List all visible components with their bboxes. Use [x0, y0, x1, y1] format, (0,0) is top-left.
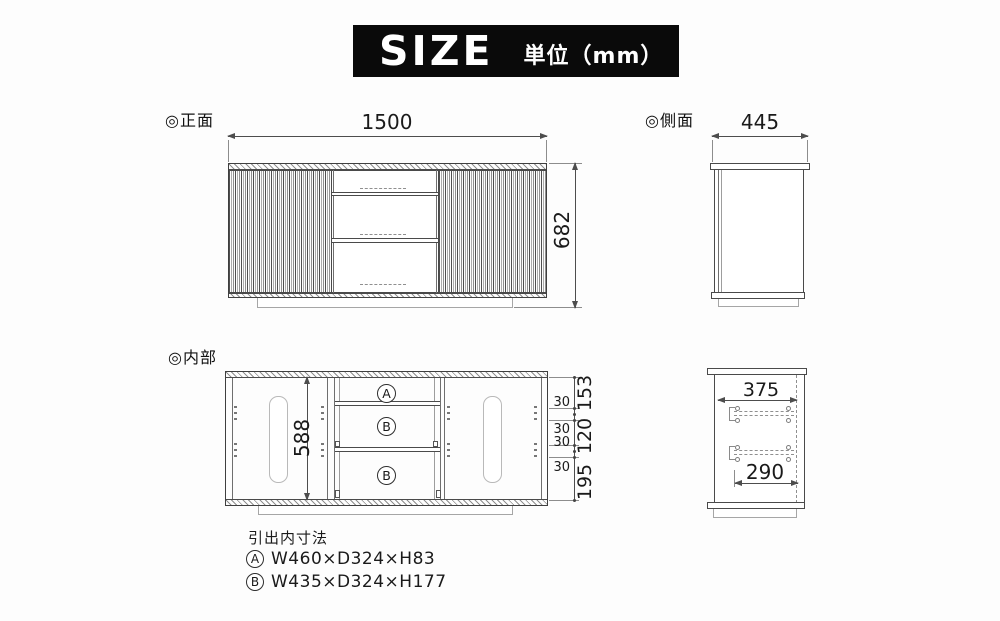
side-bottom-panel	[711, 292, 805, 299]
legend-dims-a: W460×D324×H83	[271, 549, 435, 569]
front-width-dim: 1500	[357, 111, 417, 133]
gap-dim-30: 30	[546, 396, 570, 409]
side-body	[714, 169, 804, 293]
extension-line	[712, 140, 713, 162]
rail-screw-hole	[735, 457, 740, 462]
legend-tag-b: B	[246, 573, 264, 591]
side-internal-base	[713, 509, 797, 518]
upper-depth-dim: 375	[736, 380, 786, 401]
drawer-rail-dashed	[734, 415, 794, 416]
side-door-edge-line	[721, 170, 722, 292]
lower-depth-dimline	[735, 483, 798, 484]
front-cabinet-outline	[228, 163, 547, 298]
drawer-rail-dashed	[734, 454, 794, 455]
front-height-dimline	[575, 163, 576, 308]
legend-tag-a: A	[246, 550, 264, 568]
gap-dim-30: 30	[546, 461, 570, 474]
gap-dim-30: 30	[546, 436, 570, 449]
title-bar: SIZE 単位（mm）	[353, 25, 679, 77]
legend-dims-b: W435×D324×H177	[271, 572, 447, 592]
side-depth-dimline	[712, 136, 808, 137]
rail-bracket	[729, 407, 735, 421]
section-dim-153: 153	[575, 370, 597, 416]
lower-depth-dim: 290	[741, 461, 789, 483]
front-width-dimline	[228, 136, 547, 137]
internal-base	[258, 506, 513, 515]
drawer-rail-dashed	[734, 411, 794, 412]
drawer-label-b1: B	[377, 417, 396, 436]
drawer-rail-dashed	[734, 450, 794, 451]
side-base	[718, 299, 799, 307]
section-dim-120: 120	[575, 413, 597, 459]
rail-screw-hole	[786, 418, 791, 423]
title-text: SIZE	[379, 31, 494, 72]
front-height-dim: 682	[551, 207, 575, 253]
side-door-edge-line	[718, 170, 719, 292]
side-view-label: ◎側面	[645, 107, 694, 131]
extension-line	[807, 140, 808, 162]
drawer-label-b2: B	[377, 466, 396, 485]
side-depth-dim: 445	[730, 111, 790, 133]
internal-height-dim: 588	[291, 415, 315, 461]
front-view-label: ◎正面	[165, 107, 214, 131]
size-diagram: SIZE 単位（mm） ◎正面 1500 682 ◎側面 445 ◎内部	[0, 0, 1000, 621]
rail-screw-hole	[735, 418, 740, 423]
side-internal-bottom-panel	[707, 502, 805, 509]
internal-view-label: ◎内部	[168, 344, 217, 368]
front-base	[257, 298, 513, 308]
section-dim-195: 195	[575, 459, 597, 505]
drawer-label-a: A	[377, 384, 396, 403]
extension-line	[228, 140, 229, 162]
rail-bracket	[729, 446, 735, 460]
legend-heading: 引出内寸法	[248, 527, 328, 548]
extension-line	[546, 140, 547, 162]
unit-text: 単位（mm）	[524, 32, 664, 70]
